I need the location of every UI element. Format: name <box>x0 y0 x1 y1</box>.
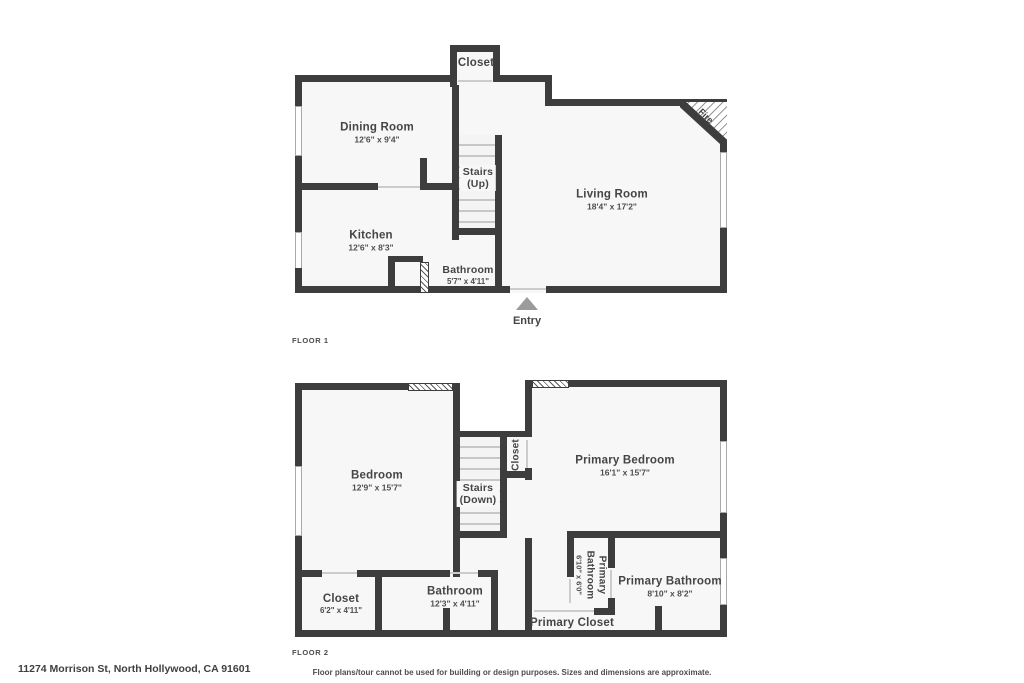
wall <box>720 228 727 293</box>
room-label-closet-f1: Closet <box>458 57 494 69</box>
wall <box>302 183 378 190</box>
window <box>295 466 302 536</box>
door-opening <box>450 572 478 574</box>
room-label-stairs-down: Stairs (Down) <box>457 481 500 507</box>
wall <box>393 256 423 262</box>
wall <box>295 268 302 293</box>
entry-label: Entry <box>513 315 541 327</box>
wall <box>655 606 662 637</box>
door-opening <box>534 610 594 612</box>
wall <box>357 570 450 577</box>
room-label-stairs-up: Stairs (Up) <box>460 165 496 191</box>
room-label-primary-bathroom: Primary Bathroom 8'10" x 8'2" <box>618 576 722 599</box>
room-label-closet-f2: Closet 6'2" x 4'11" <box>320 593 362 615</box>
wall <box>452 85 459 240</box>
room-label-dining: Dining Room 12'6" x 9'4" <box>340 122 414 145</box>
wall <box>295 156 302 234</box>
disclaimer-text: Floor plans/tour cannot be used for buil… <box>313 668 712 677</box>
wall <box>295 75 452 82</box>
wall <box>453 383 460 436</box>
window <box>295 232 302 270</box>
wall <box>567 531 574 577</box>
hatched-wall <box>532 380 569 388</box>
room-label-primary-closet: Primary Closet <box>530 617 614 629</box>
wall <box>295 630 727 637</box>
property-address: 11274 Morrison St, North Hollywood, CA 9… <box>18 663 250 675</box>
floorplan-page: Fire Closet Dining Room 12'6" x 9'4" Sta… <box>0 0 1024 683</box>
room-label-bathroom-f1: Bathroom 5'7" x 4'11" <box>442 264 493 286</box>
wall <box>295 383 412 390</box>
door-opening <box>569 579 571 603</box>
room-label-primary-bathroom-small: Primary Bathroom 6'10" x 6'0" <box>575 543 608 607</box>
room-label-kitchen: Kitchen 12'6" x 8'3" <box>348 230 393 253</box>
wall <box>525 468 532 480</box>
floor2-tag: FLOOR 2 <box>292 648 329 657</box>
entry-arrow-icon <box>516 297 538 310</box>
wall <box>567 531 727 538</box>
entry-opening <box>510 288 546 290</box>
wall <box>453 531 507 538</box>
wall <box>295 286 510 293</box>
room-label-bathroom-f2: Bathroom 12'3" x 4'11" <box>427 586 483 609</box>
wall <box>546 286 727 293</box>
window <box>295 106 302 156</box>
room-label-bedroom: Bedroom 12'9" x 15'7" <box>351 470 403 493</box>
room-label-living: Living Room 18'4" x 17'2" <box>576 189 648 212</box>
room-label-hall-closet: Closet <box>511 439 522 471</box>
wall <box>295 536 302 637</box>
door-opening <box>322 572 357 574</box>
hatched-wall <box>408 383 453 391</box>
window <box>720 441 727 513</box>
wall <box>720 387 727 441</box>
door-opening <box>610 570 612 598</box>
wall <box>491 570 498 637</box>
door-opening <box>526 440 528 470</box>
wall <box>500 431 507 537</box>
wall <box>493 75 552 82</box>
wall <box>375 570 382 637</box>
wall <box>295 383 302 466</box>
wall <box>295 75 302 108</box>
wall <box>525 380 532 436</box>
wall <box>443 608 450 637</box>
door-opening <box>378 186 420 188</box>
wall <box>420 158 427 190</box>
wall <box>452 228 502 235</box>
floor1-tag: FLOOR 1 <box>292 336 329 345</box>
wall <box>495 235 502 293</box>
wall <box>302 570 322 577</box>
wall <box>594 608 615 615</box>
wall <box>608 531 615 568</box>
window <box>720 152 727 228</box>
room-label-primary-bedroom: Primary Bedroom 16'1" x 15'7" <box>575 455 675 478</box>
door-opening <box>458 80 492 82</box>
door-panel-hatch <box>420 262 429 293</box>
